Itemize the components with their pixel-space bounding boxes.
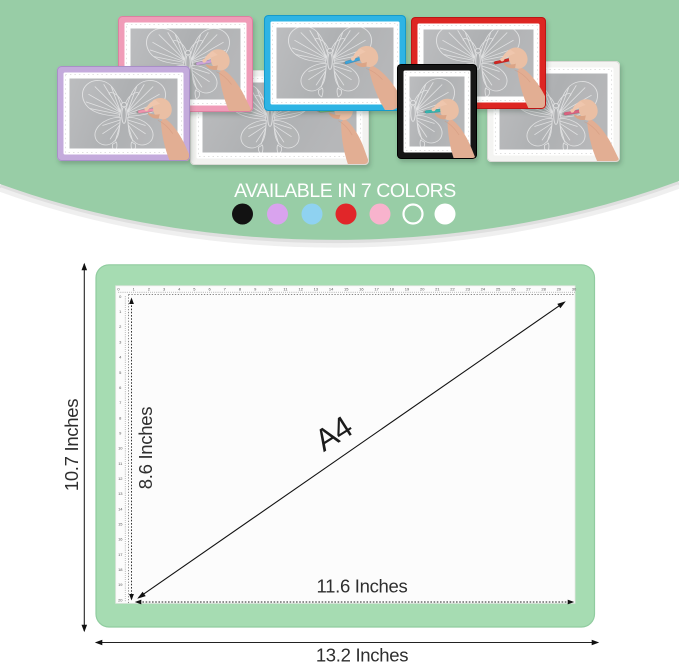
svg-text:15: 15 <box>118 522 123 527</box>
svg-text:14: 14 <box>329 287 334 292</box>
svg-text:29: 29 <box>557 287 562 292</box>
svg-text:27: 27 <box>526 287 531 292</box>
svg-text:25: 25 <box>496 287 501 292</box>
svg-text:15: 15 <box>344 287 349 292</box>
svg-text:26: 26 <box>511 287 516 292</box>
svg-text:13: 13 <box>118 491 123 496</box>
svg-text:18: 18 <box>118 567 123 572</box>
svg-text:12: 12 <box>298 287 303 292</box>
svg-text:23: 23 <box>465 287 470 292</box>
svg-text:24: 24 <box>481 287 486 292</box>
svg-text:14: 14 <box>118 506 123 511</box>
svg-text:12: 12 <box>118 476 123 481</box>
svg-text:11.6 Inches: 11.6 Inches <box>317 576 408 597</box>
svg-text:20: 20 <box>420 287 425 292</box>
svg-text:16: 16 <box>118 537 123 542</box>
svg-text:8.6 Inches: 8.6 Inches <box>135 407 156 489</box>
svg-text:17: 17 <box>118 552 123 557</box>
svg-text:22: 22 <box>450 287 455 292</box>
svg-text:28: 28 <box>541 287 546 292</box>
svg-text:17: 17 <box>374 287 379 292</box>
svg-text:19: 19 <box>405 287 410 292</box>
svg-text:20: 20 <box>118 597 123 602</box>
svg-text:10: 10 <box>268 287 273 292</box>
svg-text:18: 18 <box>390 287 395 292</box>
svg-text:16: 16 <box>359 287 364 292</box>
svg-text:10: 10 <box>118 446 123 451</box>
svg-text:30: 30 <box>572 287 577 292</box>
svg-text:21: 21 <box>435 287 440 292</box>
svg-text:13: 13 <box>314 287 319 292</box>
svg-text:19: 19 <box>118 582 123 587</box>
svg-text:AVAILABLE IN 7 COLORS: AVAILABLE IN 7 COLORS <box>234 180 456 202</box>
svg-text:13.2 Inches: 13.2 Inches <box>316 645 408 666</box>
svg-text:10.7 Inches: 10.7 Inches <box>61 399 82 491</box>
